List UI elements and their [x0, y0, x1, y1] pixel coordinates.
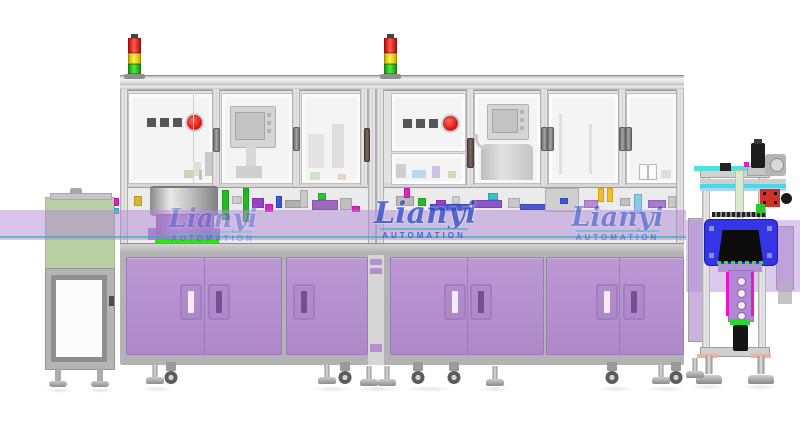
floor-shadow — [404, 386, 454, 392]
red-indicator-button — [187, 115, 202, 130]
vertical-blade — [735, 170, 744, 218]
machinery-part — [418, 198, 426, 206]
junction-slat — [370, 268, 382, 274]
machinery-part — [276, 196, 282, 208]
machinery-part — [560, 198, 568, 204]
floor-shadow — [88, 388, 114, 393]
inner-equipment — [559, 114, 562, 174]
door-handle — [213, 128, 220, 152]
floor-shadow — [646, 386, 686, 392]
machinery-part — [607, 188, 613, 202]
unit-bolt — [709, 226, 714, 231]
machinery-part — [508, 198, 520, 208]
machinery-part — [488, 193, 498, 200]
caster-wheel — [604, 362, 620, 384]
caster-wheel — [337, 362, 353, 384]
floor-shadow — [312, 386, 352, 392]
machinery-part — [300, 190, 308, 208]
panel-square-button — [173, 118, 182, 127]
caster-wheel — [410, 362, 426, 384]
unit-bolt — [767, 226, 772, 231]
door-handle — [467, 138, 474, 168]
actuator-hole — [737, 289, 746, 298]
machine-line-render: Lianyi AUTOMATION Lianyi AUTOMATION Lian… — [0, 0, 800, 438]
leveling-foot — [318, 364, 336, 384]
motor-cap — [754, 139, 762, 144]
cabinet-door-handle — [208, 284, 230, 320]
green-led-strip — [155, 240, 219, 243]
inner-equipment — [236, 166, 262, 178]
oven-foot — [91, 381, 109, 387]
machinery-part — [436, 200, 446, 205]
inner-drum — [481, 144, 533, 180]
tower-base — [124, 74, 145, 79]
panel-square-button — [147, 118, 156, 127]
floor-shadow — [140, 386, 174, 392]
actuator-tip — [733, 325, 748, 351]
machinery-part — [340, 198, 352, 210]
tower-yellow-light — [128, 53, 141, 64]
inner-equipment — [589, 124, 592, 174]
red-indicator-button — [443, 116, 458, 131]
oven-latch — [109, 296, 114, 306]
motor — [751, 143, 765, 168]
door-handle — [547, 127, 554, 151]
machinery-part — [114, 198, 119, 206]
unit-bolt — [709, 253, 714, 258]
leveling-foot — [748, 356, 774, 384]
tower-red-light — [384, 38, 397, 53]
hmi-panel — [230, 106, 276, 148]
actuator-hole — [737, 301, 746, 310]
machinery-part — [312, 200, 338, 210]
door-handle — [293, 127, 300, 151]
coupling-bolt — [763, 192, 766, 195]
green-block — [756, 204, 765, 213]
door-window-a2 — [221, 93, 293, 184]
inner-equipment — [332, 124, 344, 168]
machinery-part — [472, 200, 502, 208]
leveling-foot — [686, 358, 704, 378]
gearbox-face — [770, 158, 784, 172]
floor-shadow — [598, 386, 634, 392]
leveling-foot — [486, 366, 504, 386]
oven-lid — [50, 193, 112, 200]
junction-slat — [370, 259, 382, 265]
guard-band-teal-line — [0, 236, 686, 238]
machinery-part — [452, 196, 460, 204]
door-window-a3 — [301, 93, 361, 184]
magenta-sensor — [744, 162, 749, 167]
machinery-part — [648, 200, 666, 208]
inner-equipment — [412, 170, 426, 178]
unit-bolt — [767, 253, 772, 258]
enclosure-top-beam — [120, 75, 684, 91]
cabinet-door-handle — [596, 284, 618, 320]
caster-wheel — [163, 362, 179, 384]
actuator-rail — [751, 272, 754, 316]
panel-square-button — [160, 118, 169, 127]
door-window-b4 — [626, 93, 677, 184]
floor-shadow — [690, 384, 726, 390]
machinery-part — [134, 196, 142, 206]
floor-shadow — [356, 386, 400, 392]
hmi-panel — [487, 104, 529, 140]
coupling-bolt — [774, 192, 777, 195]
machinery-part — [620, 198, 630, 206]
machinery-part — [318, 193, 326, 200]
floor-shadow — [742, 384, 778, 390]
inner-equipment — [396, 164, 406, 178]
inner-equipment — [310, 172, 320, 180]
junction-slat — [370, 344, 382, 352]
bottle — [648, 164, 657, 180]
hand-knob — [781, 193, 792, 204]
door-window-b3 — [548, 93, 619, 184]
cabinet-door-handle — [470, 284, 492, 320]
inner-equipment — [432, 166, 440, 178]
door-handle — [364, 128, 370, 162]
blue-inspection-unit — [704, 219, 778, 266]
panel-square-button — [416, 119, 425, 128]
cabinet-door-handle — [444, 284, 466, 320]
inner-equipment — [338, 174, 346, 180]
floor-shadow — [44, 388, 74, 393]
machinery-part — [584, 200, 598, 208]
leveling-foot — [360, 366, 378, 386]
door-window-b2 — [474, 93, 541, 184]
cabinet-door-handle — [293, 284, 315, 320]
door-handle — [625, 127, 632, 151]
door-window-a1 — [128, 93, 213, 184]
cabinet-door-handle — [180, 284, 202, 320]
rail-carriage — [720, 163, 731, 171]
bottle — [639, 164, 648, 180]
machinery-part — [668, 196, 676, 208]
coupling-bolt — [763, 201, 766, 204]
inner-equipment — [199, 170, 202, 180]
hmi-mount — [246, 146, 256, 166]
caster-wheel — [446, 362, 462, 384]
tower-yellow-light — [384, 53, 397, 64]
actuator-rail — [726, 272, 729, 316]
coupling-bolt — [774, 201, 777, 204]
machinery-part — [404, 188, 410, 198]
machinery-part — [232, 196, 242, 204]
tower-base — [380, 74, 401, 79]
machinery-part — [252, 198, 264, 208]
tower-green-light — [128, 64, 141, 74]
inner-equipment — [448, 171, 456, 178]
tower-red-light — [128, 38, 141, 53]
machinery-part — [598, 188, 604, 202]
door-window-b1-lower — [391, 153, 466, 185]
inner-equipment — [661, 170, 671, 178]
unit-dark-opening — [718, 230, 763, 262]
panel-square-button — [403, 119, 412, 128]
panel-square-button — [429, 119, 438, 128]
floor-shadow — [480, 386, 510, 392]
leveling-foot — [378, 366, 396, 386]
caster-wheel — [668, 362, 684, 384]
inner-equipment — [308, 134, 324, 168]
door-window-b1-upper — [391, 93, 466, 152]
oven-foot — [49, 381, 67, 387]
leveling-foot — [146, 364, 164, 384]
oven-door — [51, 275, 107, 362]
frame-post — [466, 89, 474, 185]
tower-green-light — [384, 64, 397, 74]
cabinet-door-handle — [623, 284, 645, 320]
inner-equipment — [184, 170, 194, 178]
actuator-hole — [737, 277, 746, 286]
inner-pipe — [475, 134, 490, 149]
